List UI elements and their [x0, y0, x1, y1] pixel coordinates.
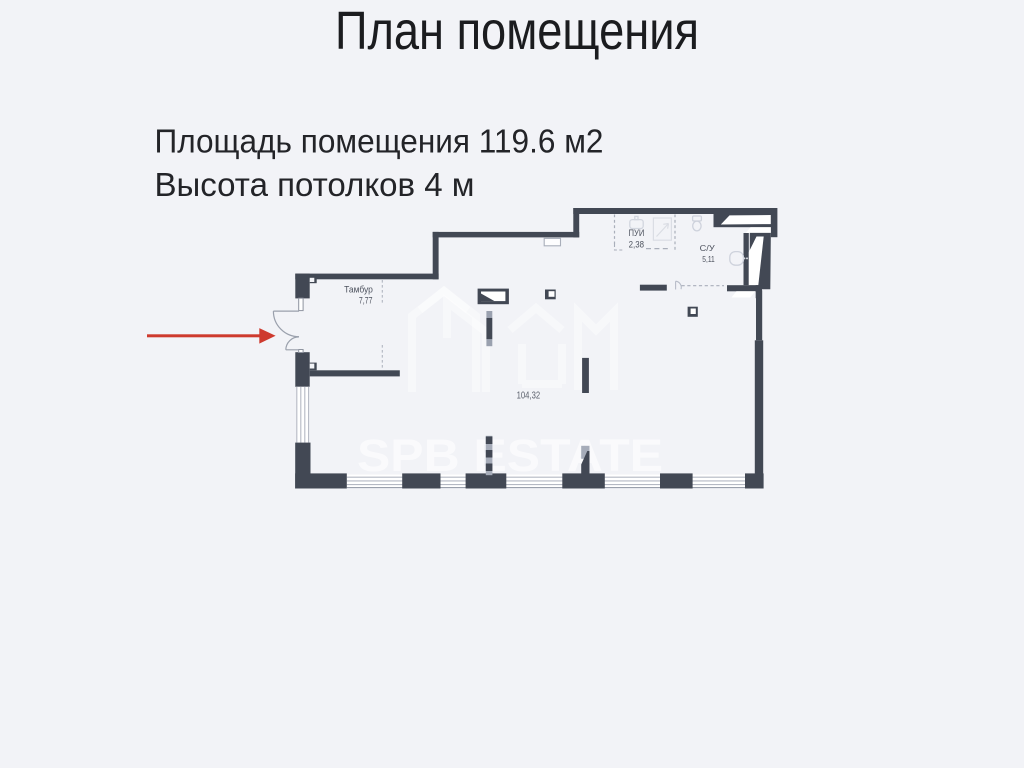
svg-text:Тамбур: Тамбур [344, 284, 373, 294]
svg-text:2,38: 2,38 [629, 239, 644, 249]
svg-text:104,32: 104,32 [517, 390, 541, 402]
svg-text:ПУИ: ПУИ [629, 228, 645, 238]
svg-text:7,77: 7,77 [359, 296, 373, 306]
svg-text:С/У: С/У [700, 243, 716, 253]
svg-text:SPB ESTATE: SPB ESTATE [357, 430, 663, 481]
svg-text:План помещения: План помещения [335, 1, 699, 61]
svg-text:Высота потолков 4 м: Высота потолков 4 м [155, 167, 475, 204]
svg-text:Площадь помещения 119.6 м2: Площадь помещения 119.6 м2 [155, 123, 604, 160]
svg-text:5,11: 5,11 [702, 254, 715, 264]
